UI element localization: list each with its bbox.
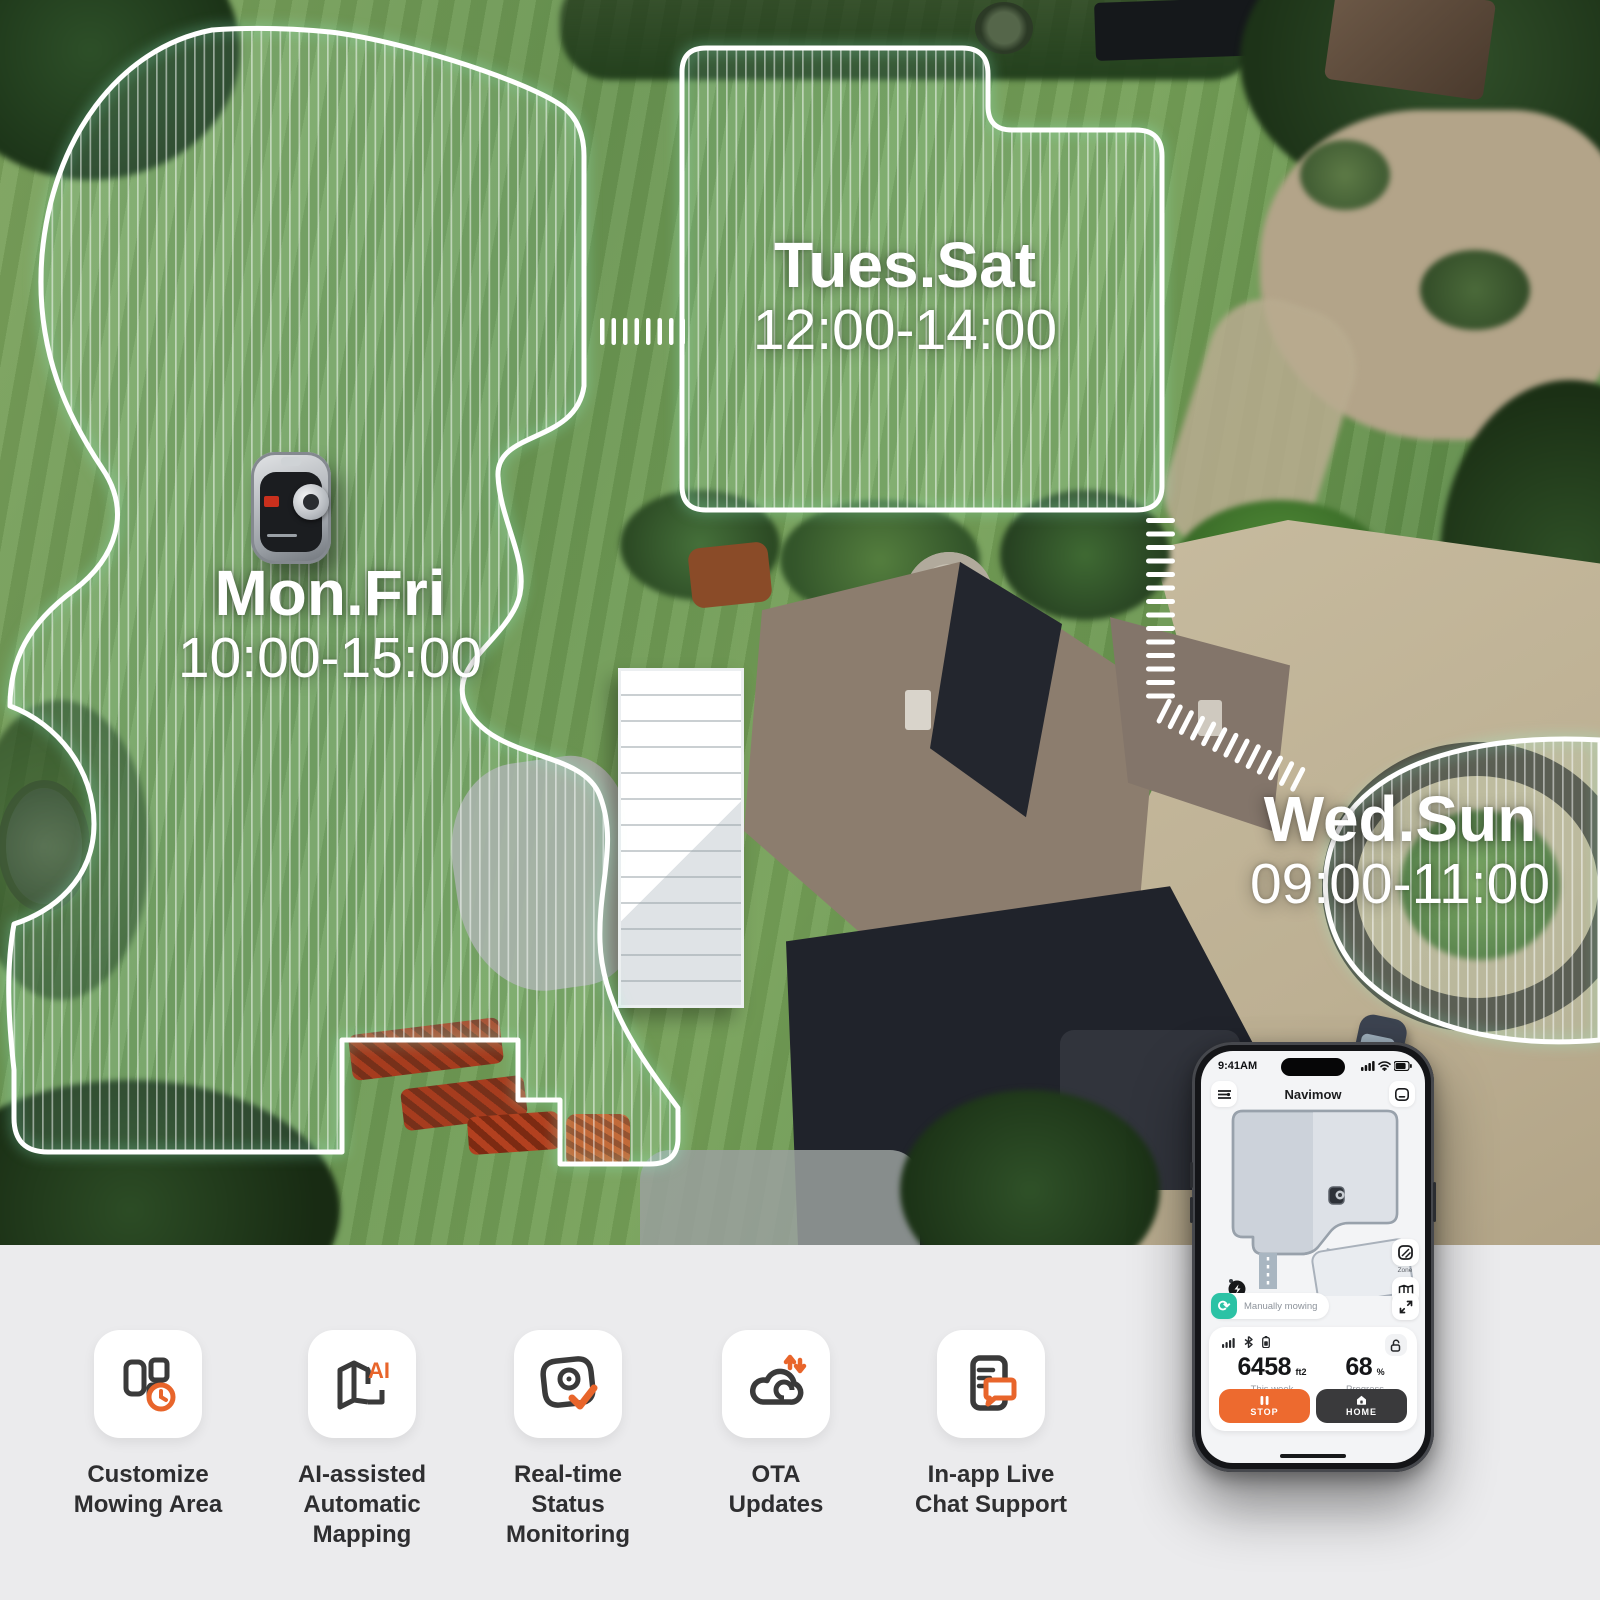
signal-bars-icon (1222, 1338, 1235, 1348)
stop-label: STOP (1250, 1407, 1278, 1417)
feature-tile (937, 1330, 1045, 1438)
area-unit: ft2 (1296, 1367, 1307, 1377)
home-icon (1356, 1395, 1367, 1405)
feature-realtime-monitoring: Real-time Status Monitoring (468, 1330, 668, 1550)
app-screen: 9:41AM (1201, 1051, 1425, 1463)
map-corridor (1259, 1253, 1277, 1289)
feature-ota-updates: OTA Updates (676, 1330, 876, 1520)
phone-volume-button (1190, 1162, 1193, 1188)
zone-label-wed-sun: Wed.Sun 09:00-11:00 (1190, 786, 1600, 916)
zone-label-tues-sat: Tues.Sat 12:00-14:00 (695, 232, 1115, 362)
wifi-icon (1378, 1061, 1391, 1071)
feature-tile: AI (308, 1330, 416, 1438)
mower-stop-button (264, 496, 279, 507)
phone-mockup: 9:41AM (1192, 1042, 1434, 1472)
feature-label-line: Mowing Area (48, 1490, 248, 1520)
feature-label-line: Status (468, 1490, 668, 1520)
progress-value: 68 (1345, 1353, 1372, 1381)
feature-label-line: In-app Live (891, 1460, 1091, 1490)
dynamic-island (1281, 1058, 1345, 1076)
feature-label-line: Automatic (262, 1490, 462, 1520)
status-bar-icons (1361, 1061, 1412, 1071)
bluetooth-icon (1244, 1336, 1253, 1348)
feature-label-line: OTA (676, 1460, 876, 1490)
mower-status-pill: ⟳ Manually mowing (1211, 1293, 1329, 1319)
feature-label-line: Chat Support (891, 1490, 1091, 1520)
fullscreen-button[interactable] (1392, 1293, 1419, 1320)
area-value: 6458 (1237, 1353, 1291, 1381)
corridor-dashes-diagonal (1156, 698, 1306, 792)
zone-days: Mon.Fri (120, 560, 540, 627)
home-indicator (1280, 1454, 1346, 1458)
status-bar-time: 9:41AM (1218, 1060, 1257, 1072)
expand-icon (1399, 1300, 1413, 1314)
control-card: 6458 ft2 This week 68 % Progress STOP (1209, 1327, 1417, 1431)
zones-clock-icon (116, 1352, 180, 1416)
corridor-dashes-left (600, 318, 685, 345)
battery-icon (1394, 1061, 1412, 1071)
feature-tile (94, 1330, 202, 1438)
camera-check-icon (536, 1352, 600, 1416)
svg-text:AI: AI (368, 1358, 390, 1383)
corridor-dashes-vertical (1146, 518, 1175, 699)
feature-label-line: Monitoring (468, 1520, 668, 1550)
marketing-scene: Mon.Fri 10:00-15:00 Tues.Sat 12:00-14:00… (0, 0, 1600, 1600)
device-status-icons (1222, 1336, 1270, 1348)
zone-time: 10:00-15:00 (120, 627, 540, 690)
lock-open-icon (1390, 1339, 1402, 1352)
cloud-arrows-icon (744, 1352, 808, 1416)
mower-camera-lens (303, 494, 319, 510)
zone-button-caption: Zone (1383, 1267, 1425, 1274)
robot-mower (251, 452, 331, 564)
home-button[interactable]: HOME (1316, 1389, 1407, 1423)
map-robot-marker (1329, 1187, 1345, 1204)
feature-tile (514, 1330, 622, 1438)
status-text: Manually mowing (1244, 1301, 1317, 1312)
cellular-icon (1361, 1061, 1375, 1071)
zone-days: Wed.Sun (1190, 786, 1600, 853)
feature-tile (722, 1330, 830, 1438)
zone-label-mon-fri: Mon.Fri 10:00-15:00 (120, 560, 540, 690)
pause-icon (1260, 1396, 1269, 1405)
zone-hatch-icon (1398, 1245, 1413, 1260)
map-main-zone-light-half (1313, 1109, 1399, 1257)
progress-unit: % (1377, 1367, 1385, 1377)
status-spinner-icon: ⟳ (1211, 1293, 1237, 1319)
zone-days: Tues.Sat (695, 232, 1115, 299)
zone-button[interactable] (1392, 1239, 1419, 1266)
doc-chat-icon (959, 1352, 1023, 1416)
phone-power-button (1433, 1182, 1436, 1222)
feature-label-line: Real-time (468, 1460, 668, 1490)
stop-button[interactable]: STOP (1219, 1389, 1310, 1423)
feature-live-chat: In-app Live Chat Support (891, 1330, 1091, 1520)
feature-label-line: Mapping (262, 1520, 462, 1550)
chat-console-icon (1395, 1088, 1409, 1101)
home-label: HOME (1346, 1407, 1377, 1417)
zone-time: 12:00-14:00 (695, 299, 1115, 362)
feature-label-line: Customize (48, 1460, 248, 1490)
mower-brand-mark (267, 534, 297, 537)
action-buttons: STOP HOME (1219, 1389, 1407, 1423)
ai-map-icon: AI (330, 1352, 394, 1416)
mower-top-light (281, 457, 301, 466)
feature-ai-mapping: AI AI-assisted Automatic Mapping (262, 1330, 462, 1550)
feature-label-line: Updates (676, 1490, 876, 1520)
zone-time: 09:00-11:00 (1190, 853, 1600, 916)
feature-label-line: AI-assisted (262, 1460, 462, 1490)
phone-volume-button (1190, 1197, 1193, 1223)
feature-customize-mowing-area: Customize Mowing Area (48, 1330, 248, 1520)
robot-battery-icon (1262, 1336, 1270, 1348)
